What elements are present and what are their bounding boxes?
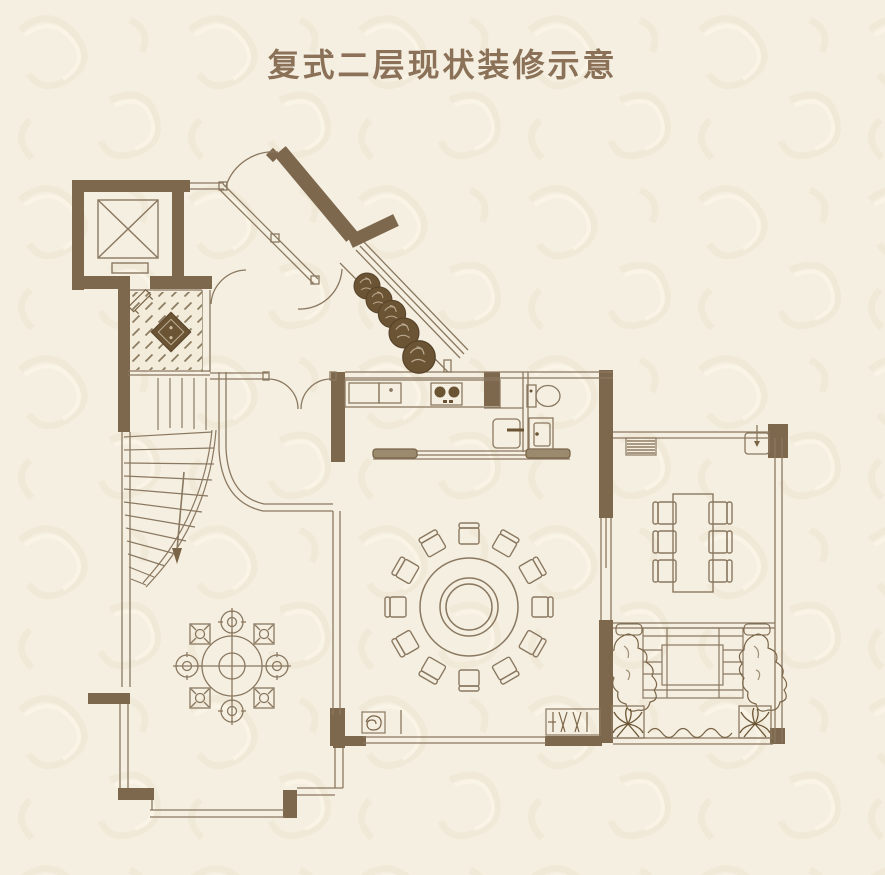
entry-foyer — [129, 290, 202, 370]
wall-elevator-bottom-left — [72, 276, 130, 289]
wall-sunroom-topright-corner — [768, 424, 788, 458]
wall-dining-bottom-left — [330, 736, 366, 746]
wall-dining-bottom-right — [545, 736, 602, 746]
page-title: 复式二层现状装修示意 — [0, 40, 885, 86]
wall-elevator-right — [172, 180, 184, 278]
wall-elevator-left — [72, 180, 84, 290]
wall-dining-right-lower — [599, 620, 613, 743]
wall-bay-left-step — [118, 788, 154, 800]
wall-bath-right-upper — [599, 370, 613, 518]
floor-plan-drawing — [0, 0, 885, 875]
floor-plan-stage — [0, 0, 885, 875]
wall-bay-right-step — [283, 790, 297, 818]
wall-left-step — [88, 693, 130, 704]
tea-room — [173, 608, 291, 725]
ac-unit-striped — [626, 438, 656, 455]
wall-kitchen-left-pier — [331, 372, 345, 462]
wall-kitchen-right-pier — [484, 372, 500, 406]
wall-foyer-left — [118, 288, 130, 432]
wall-sunroom-bottomright-corner — [770, 728, 785, 744]
wall-dining-bottom-left-pier — [330, 708, 345, 738]
